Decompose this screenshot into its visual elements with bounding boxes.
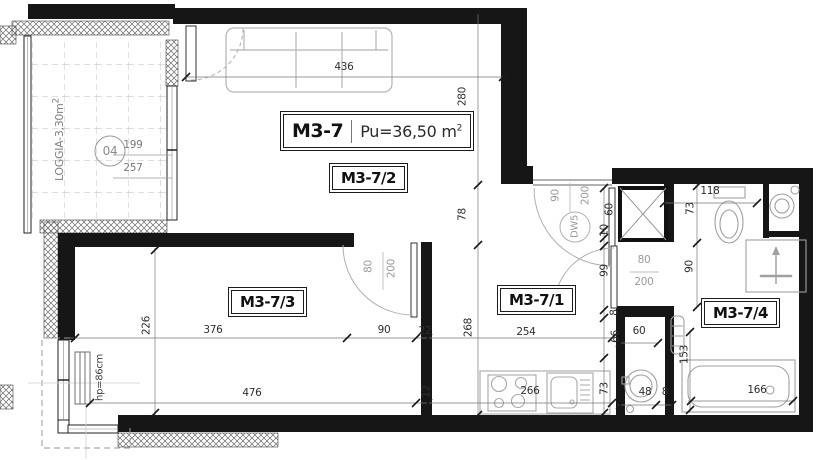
- radiator-sill-note: hp=86cm: [94, 348, 107, 408]
- bedroom-door-leaf: [411, 243, 417, 317]
- balcony-door-leaf: [186, 26, 196, 81]
- dim-hall-w: 254: [504, 326, 548, 339]
- washbasin: [746, 240, 806, 292]
- sofa: [226, 28, 392, 92]
- dim-bedroom-total: 476: [230, 387, 274, 400]
- room-label-hall: M3-7/1: [500, 288, 573, 312]
- dim-entry-8: 8: [609, 291, 622, 335]
- dim-entry-99: 99: [599, 249, 612, 293]
- dim-bath-90: 90: [684, 245, 697, 289]
- room-label-bedroom: M3-7/3: [231, 290, 304, 314]
- bedroom-door-width: 80: [363, 245, 376, 289]
- room-label-living: M3-7/2: [332, 166, 405, 190]
- apartment-area: Pu=36,50 m2: [351, 120, 470, 143]
- corner-basin: [770, 186, 799, 218]
- dim-living-top: 436: [322, 61, 366, 74]
- room-label-bathroom: M3-7/4: [704, 301, 777, 325]
- entry-door-width: 90: [550, 174, 563, 218]
- balcony-door-arc: [191, 28, 243, 80]
- loggia-window-height: 257: [111, 162, 155, 175]
- dim-bedroom-w1: 376: [191, 324, 235, 337]
- loggia-label: LOGGIA-3,30m2: [51, 80, 64, 200]
- dim-wm-8: 8: [643, 386, 687, 399]
- dim-living-right-b: 78: [457, 193, 470, 237]
- bathroom-door-height: 200: [622, 276, 666, 289]
- dim-bedroom-left: 226: [141, 304, 154, 348]
- dim-wall-22: 22: [403, 325, 447, 338]
- bathroom-door-width: 80: [622, 254, 666, 267]
- dim-tub-166: 166: [735, 384, 779, 397]
- bedroom-door-height: 200: [386, 247, 399, 291]
- ventilation-shaft: [620, 188, 666, 240]
- dim-kitchen-run: 266: [508, 385, 552, 398]
- floor-plan: M3-7 Pu=36,50 m2 M3-7/2 M3-7/3 M3-7/1 M3…: [0, 0, 820, 460]
- dim-bath-73: 73: [685, 187, 698, 231]
- dim-niche-60: 60: [617, 325, 661, 338]
- dim-hall-right: 268: [463, 306, 476, 350]
- entry-door-id: DW5: [569, 205, 582, 249]
- radiator: [75, 352, 90, 404]
- entry-threshold: [533, 180, 612, 185]
- dim-wall-12: 12: [421, 370, 434, 414]
- dim-kitchen-73: 73: [599, 367, 612, 411]
- title-box: M3-7 Pu=36,50 m2: [283, 114, 471, 148]
- dim-bedroom-w2: 90: [362, 324, 406, 337]
- dim-entry-10: 10: [599, 209, 612, 253]
- kitchen-sink: [547, 373, 593, 413]
- apartment-id: M3-7: [284, 118, 351, 144]
- bedroom-door-arc: [343, 245, 413, 315]
- dim-living-right-a: 280: [457, 75, 470, 119]
- dim-bath-153: 153: [679, 333, 692, 377]
- loggia-window-width: 199: [111, 139, 155, 152]
